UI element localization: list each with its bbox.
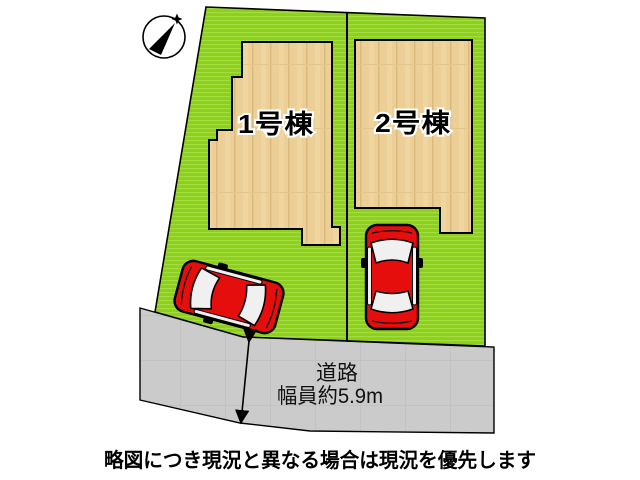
road-width-label: 幅員約5.9m	[277, 385, 383, 408]
building-1-label: 1号棟	[238, 109, 314, 139]
building-2-label: 2号棟	[375, 108, 451, 138]
car-2	[361, 225, 423, 329]
site-plan-svg: 1号棟 2号棟 道路 幅員約5.9m 略図につき現況と異なる場合は現況を優先しま…	[0, 0, 640, 480]
site-plan: 1号棟 2号棟 道路 幅員約5.9m 略図につき現況と異なる場合は現況を優先しま…	[0, 0, 640, 480]
disclaimer-caption: 略図につき現況と異なる場合は現況を優先します	[104, 448, 536, 472]
road-name-label: 道路	[316, 362, 358, 385]
compass-icon	[143, 14, 185, 59]
